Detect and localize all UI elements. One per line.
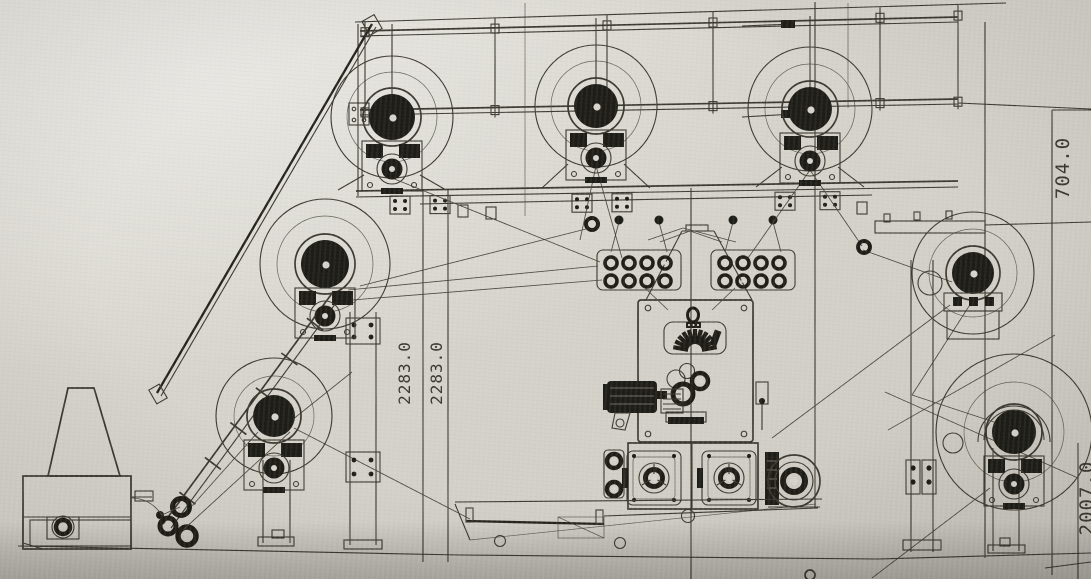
machine-elevation-drawing: 2283.0 2283.0 704.0 2007.0 — [0, 0, 1091, 579]
photographed-engineering-drawing: 2283.0 2283.0 704.0 2007.0 — [0, 0, 1091, 579]
photo-bottom-shadow — [0, 0, 1091, 579]
